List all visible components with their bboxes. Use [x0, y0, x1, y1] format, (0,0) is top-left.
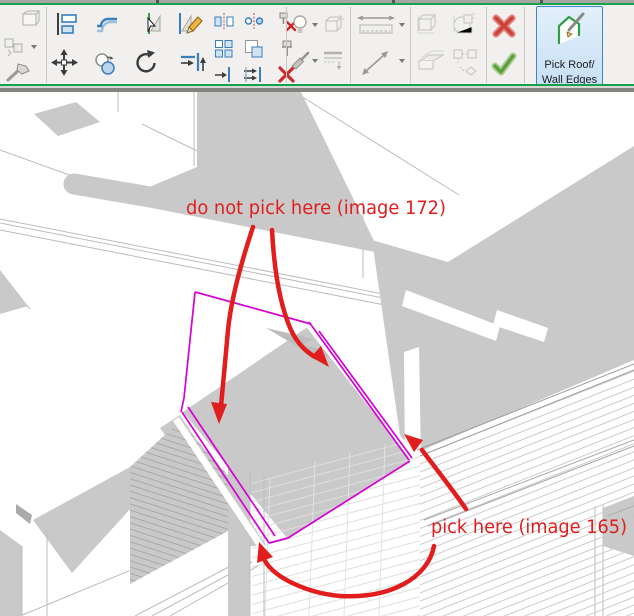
lightbulb-icon[interactable] — [291, 14, 309, 36]
model-viewport[interactable]: do not pick here (image 172) pick here (… — [0, 92, 634, 616]
group-boxes-icon[interactable] — [416, 11, 444, 39]
toolbar-divider — [410, 7, 411, 83]
toolbar-divider — [286, 7, 287, 83]
trim-multi-icon[interactable] — [242, 65, 266, 85]
annotation-pick-here: pick here (image 165) — [431, 517, 627, 538]
pick-edit-icon[interactable] — [176, 11, 204, 37]
measure-horizontal-icon[interactable] — [356, 13, 396, 39]
shadow-box-icon[interactable] — [322, 13, 346, 37]
demolish-hammer-icon[interactable] — [4, 60, 34, 84]
linework-icon[interactable] — [322, 49, 346, 73]
array-icon[interactable] — [214, 39, 234, 59]
copy-icon[interactable] — [93, 51, 119, 77]
finish-check-icon[interactable] — [491, 51, 517, 77]
trim-icon[interactable] — [213, 65, 235, 85]
chevron-down-icon[interactable] — [312, 23, 318, 27]
pick-lines-icon[interactable] — [138, 11, 164, 37]
toolbar-divider — [486, 7, 487, 83]
modify-toolbar: Pick Roof/ Wall Edges — [0, 5, 634, 84]
application-window: Pick Roof/ Wall Edges — [0, 0, 634, 616]
rotate-icon[interactable] — [133, 49, 160, 76]
chevron-down-icon[interactable] — [31, 45, 37, 49]
chevron-down-icon[interactable] — [399, 59, 405, 63]
pick-button-label-line1: Pick Roof/ — [537, 59, 602, 72]
pick-roof-wall-edges-button[interactable]: Pick Roof/ Wall Edges — [536, 6, 603, 86]
mirror-icon[interactable] — [214, 12, 234, 32]
chevron-down-icon[interactable] — [312, 59, 318, 63]
toolbar-divider — [350, 7, 351, 83]
move-icon[interactable] — [51, 49, 78, 76]
offset-icon[interactable] — [94, 11, 120, 37]
mirror-project-icon[interactable] — [244, 12, 264, 32]
convert-group-icon[interactable] — [452, 47, 480, 77]
pick-roof-icon — [552, 10, 588, 52]
toolbar-divider — [46, 7, 47, 83]
align-icon[interactable] — [54, 11, 80, 37]
scale-icon[interactable] — [244, 39, 264, 59]
chevron-down-icon[interactable] — [399, 23, 405, 27]
toolbar-divider — [524, 7, 525, 83]
cancel-x-icon[interactable] — [491, 13, 517, 39]
model-group-icon[interactable] — [450, 11, 478, 39]
wall-slab-icon[interactable] — [416, 47, 446, 77]
measure-diagonal-icon[interactable] — [360, 49, 390, 77]
annotation-do-not-pick: do not pick here (image 172) — [186, 198, 446, 219]
corner-join-icon[interactable] — [178, 49, 208, 76]
box-icon[interactable] — [20, 9, 42, 31]
group-icon[interactable] — [2, 36, 28, 56]
paintbrush-icon[interactable] — [289, 49, 311, 71]
model-drawing: do not pick here (image 172) pick here (… — [0, 92, 634, 616]
